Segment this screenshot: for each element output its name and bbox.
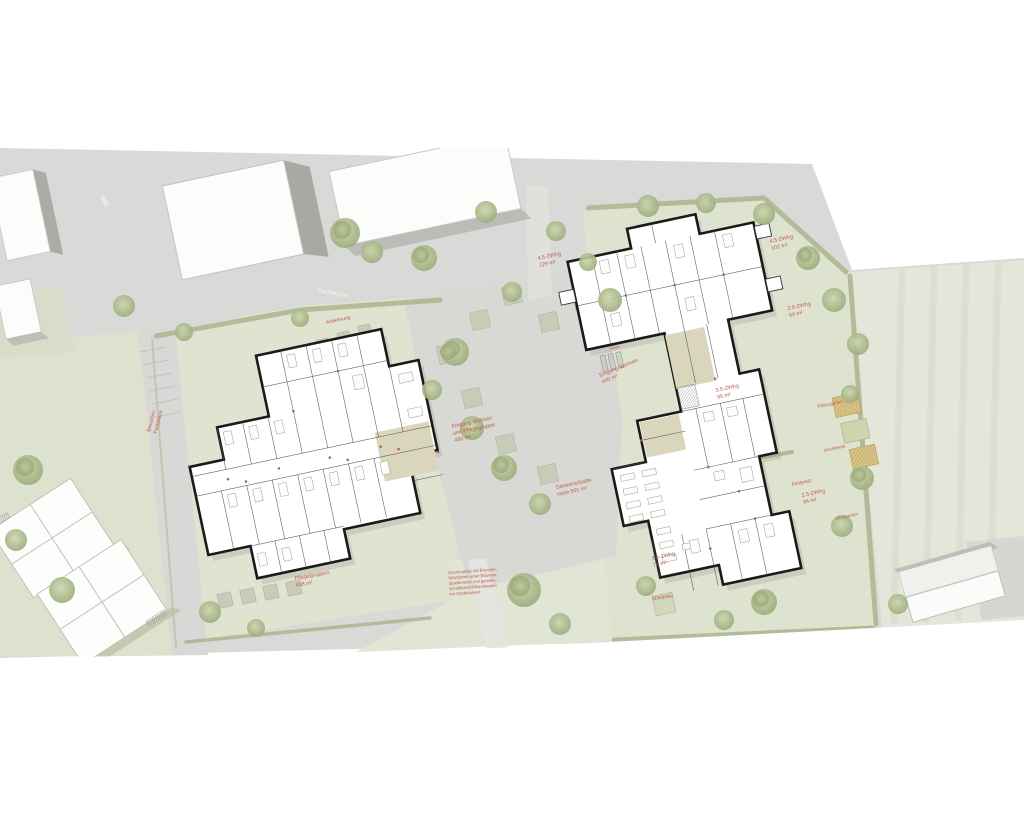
top-margin: [0, 0, 1024, 148]
site-plan-canvas: 460 Bachstrasse 4.5-ZWhg 129 m² 4.5-ZWhg…: [0, 0, 1024, 819]
site-plan-page: 460 Bachstrasse 4.5-ZWhg 129 m² 4.5-ZWhg…: [0, 0, 1024, 819]
